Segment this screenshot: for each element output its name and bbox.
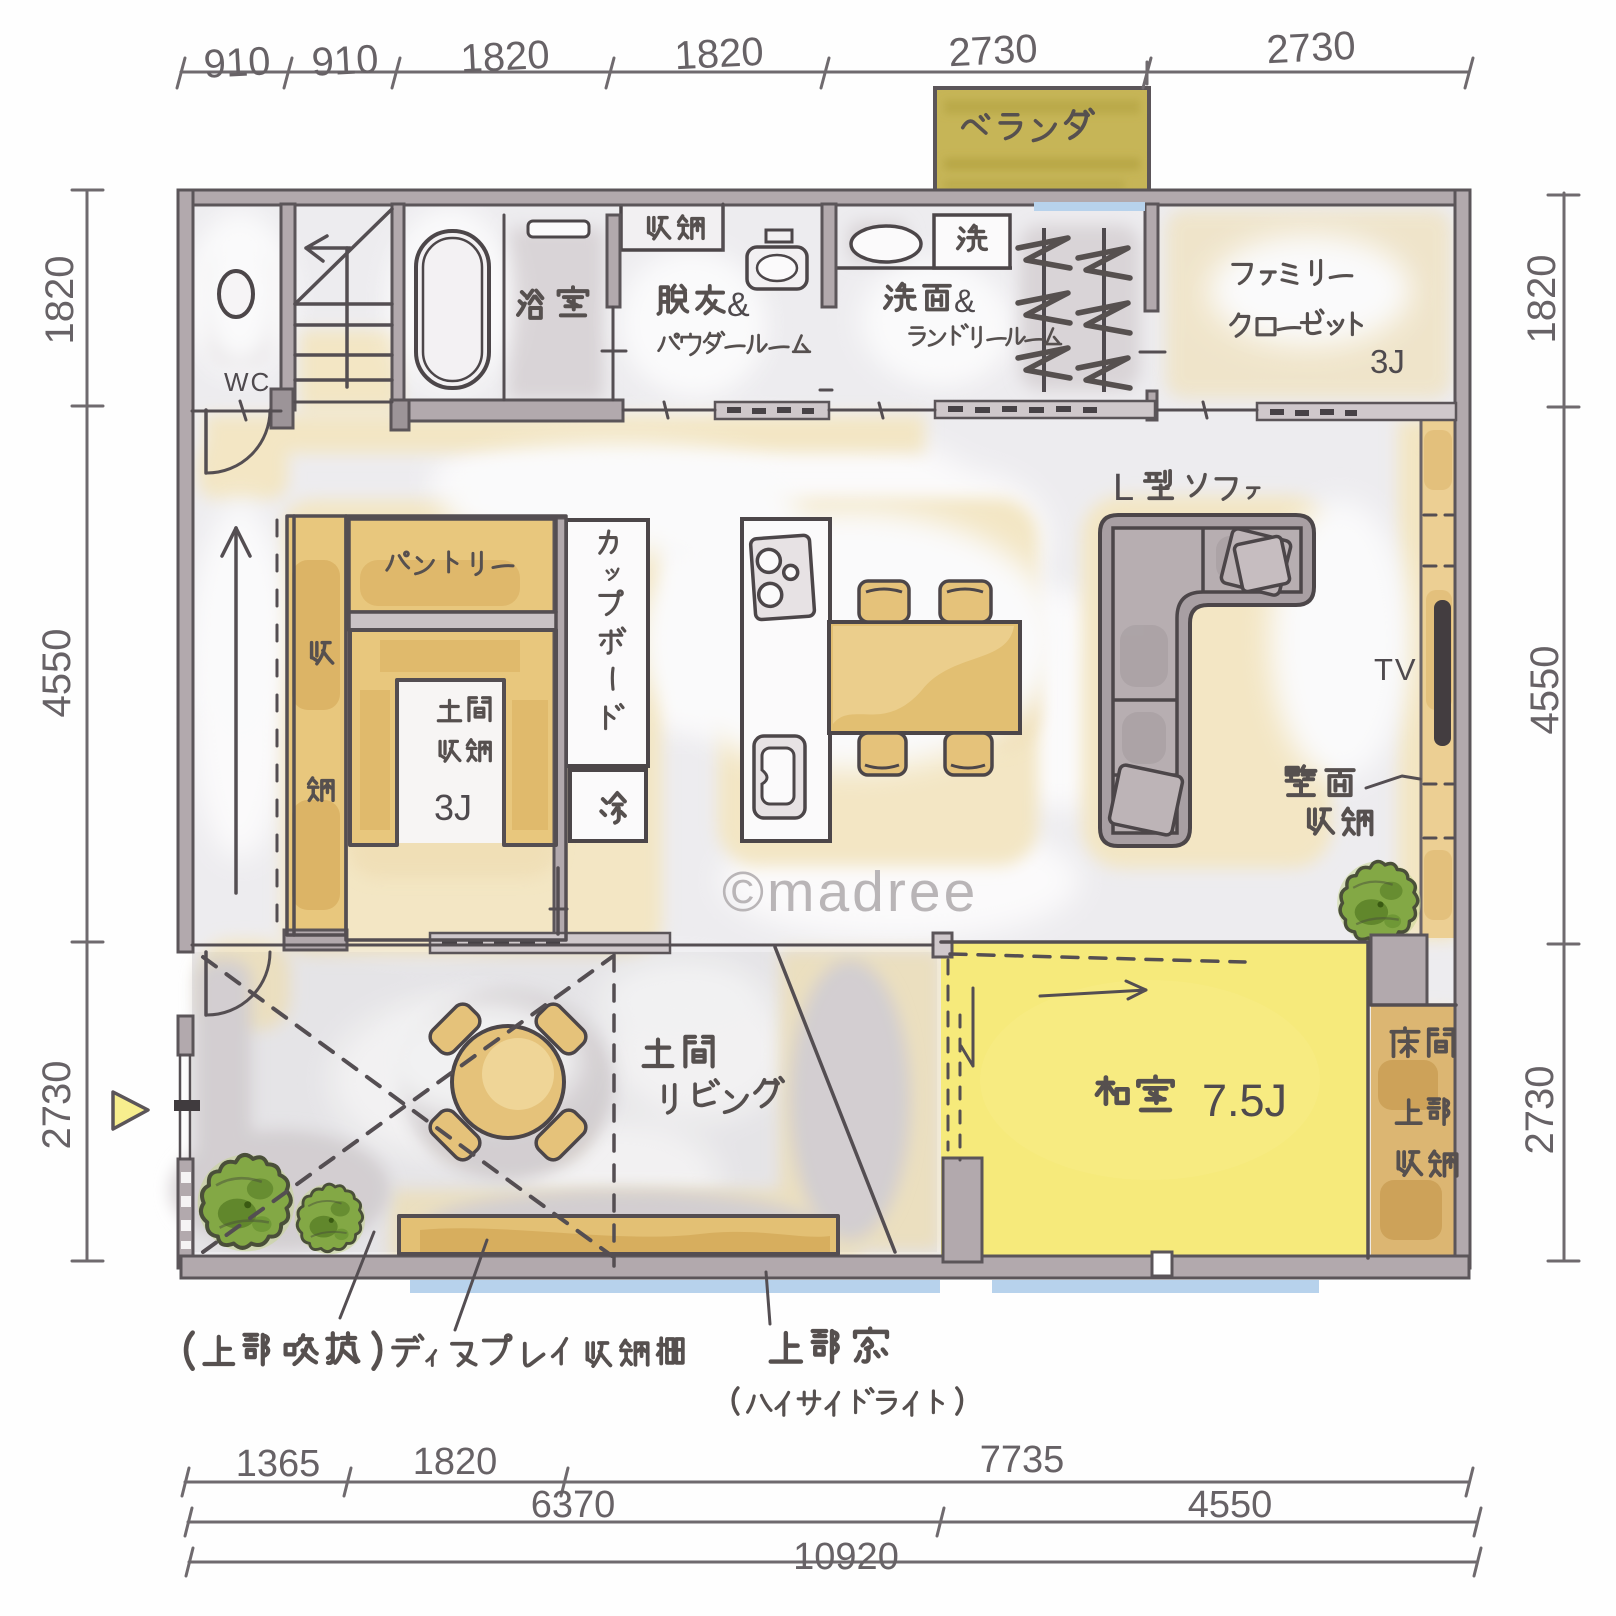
svg-text:4550: 4550 (1188, 1484, 1273, 1526)
svg-text:TV: TV (1374, 652, 1418, 687)
svg-text:1820: 1820 (673, 30, 764, 79)
svg-text:WC: WC (224, 367, 271, 397)
svg-text:2730: 2730 (35, 1061, 79, 1150)
svg-text:©madree: ©madree (722, 860, 978, 924)
svg-text:&: & (727, 286, 750, 324)
svg-text:3J: 3J (434, 787, 472, 828)
svg-text:7735: 7735 (980, 1439, 1065, 1481)
svg-text:1820: 1820 (38, 256, 82, 345)
svg-text:2730: 2730 (947, 27, 1038, 76)
svg-text:&: & (954, 283, 975, 319)
svg-text:4550: 4550 (35, 629, 79, 718)
svg-text:910: 910 (311, 37, 380, 84)
svg-text:910: 910 (203, 39, 272, 86)
svg-text:L: L (1113, 467, 1134, 509)
svg-text:1820: 1820 (1520, 255, 1564, 344)
svg-text:10920: 10920 (793, 1536, 899, 1578)
svg-text:4550: 4550 (1523, 646, 1567, 735)
svg-text:3J: 3J (1370, 343, 1405, 380)
svg-text:1820: 1820 (459, 33, 550, 82)
svg-text:1365: 1365 (236, 1443, 321, 1485)
svg-text:7.5J: 7.5J (1202, 1075, 1287, 1126)
svg-text:2730: 2730 (1265, 24, 1356, 73)
svg-text:2730: 2730 (1518, 1066, 1562, 1155)
svg-text:1820: 1820 (413, 1441, 498, 1483)
svg-text:6370: 6370 (531, 1484, 616, 1526)
